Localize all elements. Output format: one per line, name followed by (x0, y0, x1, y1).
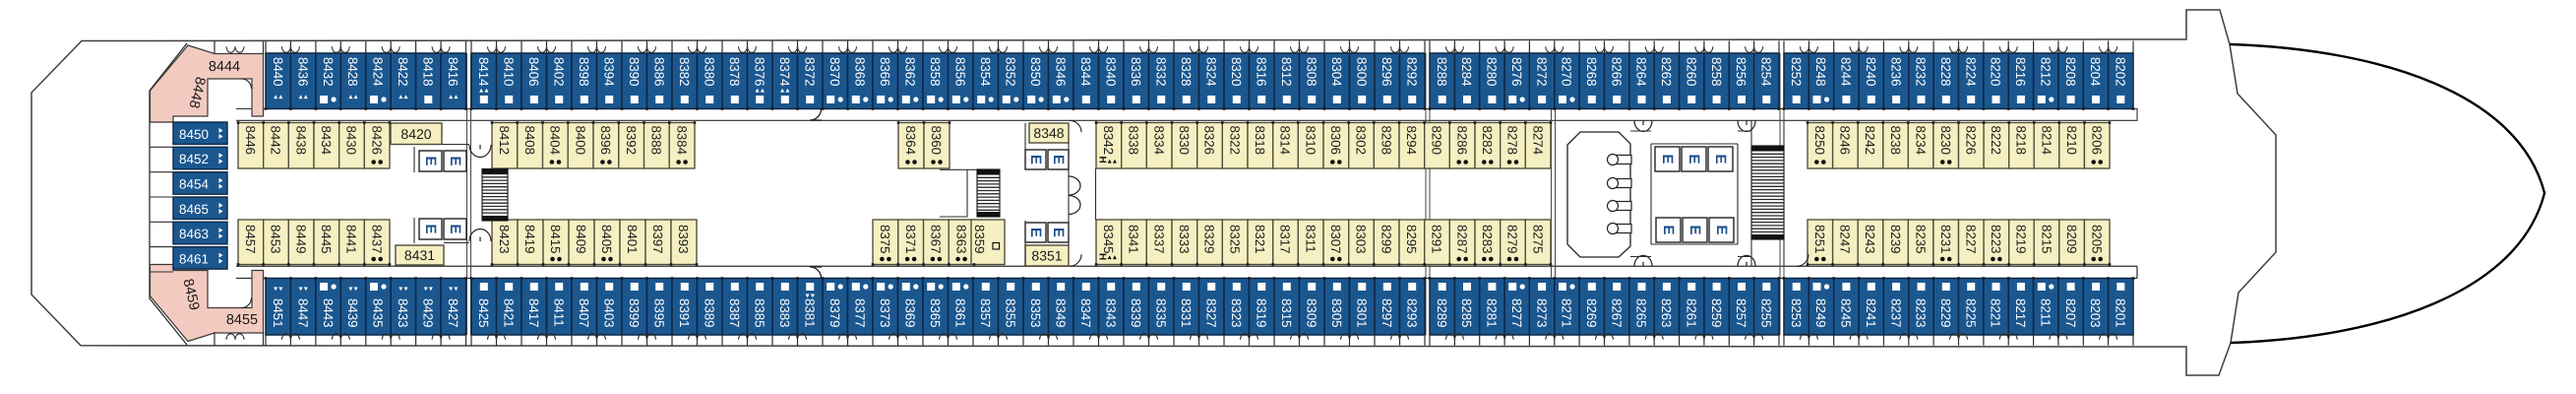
svg-text:8259: 8259 (1709, 298, 1724, 328)
svg-text:8317: 8317 (1278, 225, 1293, 254)
svg-text:8352: 8352 (1004, 57, 1018, 87)
svg-text:8443: 8443 (321, 298, 336, 328)
svg-text:8369: 8369 (903, 298, 918, 328)
svg-text:8430: 8430 (344, 126, 359, 156)
svg-text:8266: 8266 (1609, 57, 1624, 87)
svg-text:8426: 8426 (369, 126, 384, 156)
svg-text:8376: 8376 (753, 57, 767, 87)
svg-text:8360: 8360 (929, 126, 944, 156)
svg-text:8289: 8289 (1435, 298, 1449, 328)
svg-text:8224: 8224 (1963, 57, 1978, 87)
svg-text:8384: 8384 (674, 126, 689, 156)
svg-text:8436: 8436 (295, 57, 310, 87)
svg-text:8298: 8298 (1379, 126, 1393, 156)
svg-text:8345: 8345 (1101, 225, 1116, 254)
svg-text:8373: 8373 (878, 298, 892, 328)
svg-text:8411: 8411 (552, 298, 567, 327)
svg-text:8342: 8342 (1101, 126, 1116, 156)
svg-text:8382: 8382 (677, 57, 692, 87)
svg-text:8365: 8365 (928, 298, 943, 328)
svg-text:8297: 8297 (1380, 298, 1394, 328)
svg-text:8406: 8406 (526, 57, 541, 87)
svg-text:8306: 8306 (1328, 126, 1343, 156)
svg-text:8351: 8351 (1031, 248, 1062, 264)
svg-text:8441: 8441 (344, 225, 359, 254)
svg-text:8338: 8338 (1127, 126, 1141, 156)
svg-text:8428: 8428 (345, 57, 360, 87)
svg-text:8286: 8286 (1454, 126, 1469, 156)
svg-text:E: E (1660, 225, 1677, 234)
svg-text:H: H (1096, 157, 1107, 164)
svg-text:8383: 8383 (777, 298, 792, 328)
svg-text:8421: 8421 (502, 298, 517, 328)
svg-text:8238: 8238 (1888, 126, 1903, 156)
svg-text:8329: 8329 (1202, 225, 1217, 254)
svg-text:8210: 8210 (2064, 126, 2079, 156)
svg-text:8312: 8312 (1279, 57, 1294, 87)
svg-text:8359: 8359 (972, 225, 987, 254)
svg-text:8390: 8390 (627, 57, 642, 87)
svg-text:8377: 8377 (853, 298, 868, 328)
svg-text:8355: 8355 (1004, 298, 1018, 328)
svg-text:8272: 8272 (1534, 57, 1549, 87)
svg-text:8235: 8235 (1913, 225, 1928, 254)
svg-text:8322: 8322 (1227, 126, 1242, 156)
svg-text:8453: 8453 (269, 225, 283, 254)
svg-text:8263: 8263 (1659, 298, 1674, 328)
svg-text:8461: 8461 (179, 251, 209, 266)
svg-text:8437: 8437 (369, 225, 384, 254)
svg-text:8237: 8237 (1888, 298, 1903, 328)
svg-text:8207: 8207 (2063, 298, 2078, 328)
svg-text:8391: 8391 (677, 298, 692, 328)
svg-text:8350: 8350 (1028, 57, 1043, 87)
svg-text:8387: 8387 (727, 298, 742, 328)
svg-text:8429: 8429 (421, 298, 436, 328)
svg-text:8232: 8232 (1914, 57, 1929, 87)
svg-text:8362: 8362 (903, 57, 918, 87)
svg-text:8281: 8281 (1485, 298, 1500, 328)
svg-text:8440: 8440 (271, 57, 285, 87)
svg-text:8366: 8366 (878, 57, 892, 87)
svg-text:8326: 8326 (1202, 126, 1217, 156)
svg-text:8341: 8341 (1127, 225, 1141, 254)
svg-text:8305: 8305 (1329, 298, 1344, 328)
svg-text:8244: 8244 (1839, 57, 1854, 87)
svg-text:8233: 8233 (1914, 298, 1929, 328)
svg-text:8337: 8337 (1151, 225, 1166, 254)
svg-text:8267: 8267 (1609, 298, 1624, 328)
svg-text:8251: 8251 (1812, 225, 1827, 254)
svg-text:8203: 8203 (2088, 298, 2103, 328)
svg-text:8401: 8401 (625, 225, 640, 254)
svg-text:8285: 8285 (1459, 298, 1474, 328)
svg-text:8304: 8304 (1329, 57, 1344, 87)
svg-text:8444: 8444 (209, 59, 240, 75)
svg-text:8397: 8397 (650, 225, 665, 254)
svg-text:8226: 8226 (1964, 126, 1979, 156)
svg-text:8255: 8255 (1759, 298, 1774, 328)
svg-text:8361: 8361 (953, 298, 968, 328)
svg-text:8311: 8311 (1303, 225, 1318, 253)
svg-text:8280: 8280 (1485, 57, 1500, 87)
svg-text:8262: 8262 (1659, 57, 1674, 87)
svg-text:8314: 8314 (1278, 126, 1293, 156)
svg-text:8405: 8405 (599, 225, 614, 254)
svg-text:8427: 8427 (446, 298, 460, 328)
svg-text:8268: 8268 (1584, 57, 1599, 87)
svg-text:8279: 8279 (1505, 225, 1520, 254)
svg-text:8206: 8206 (2089, 126, 2104, 156)
svg-text:8357: 8357 (978, 298, 993, 328)
svg-text:8452: 8452 (179, 152, 209, 166)
svg-text:E: E (422, 156, 439, 165)
svg-text:8449: 8449 (293, 225, 308, 254)
svg-text:8269: 8269 (1584, 298, 1599, 328)
svg-text:8403: 8403 (602, 298, 617, 328)
svg-text:8245: 8245 (1839, 298, 1854, 328)
svg-text:8205: 8205 (2089, 225, 2104, 254)
svg-text:8346: 8346 (1054, 57, 1069, 87)
svg-text:E: E (447, 156, 463, 165)
svg-text:8434: 8434 (319, 126, 334, 156)
svg-text:8273: 8273 (1534, 298, 1549, 328)
svg-text:8438: 8438 (293, 126, 308, 156)
svg-text:8389: 8389 (703, 298, 717, 328)
svg-text:8398: 8398 (577, 57, 591, 87)
svg-text:8310: 8310 (1303, 126, 1318, 156)
svg-text:8370: 8370 (828, 57, 842, 87)
svg-text:8407: 8407 (577, 298, 591, 328)
svg-text:8418: 8418 (421, 57, 436, 87)
svg-text:8422: 8422 (396, 57, 410, 87)
svg-text:8284: 8284 (1459, 57, 1474, 87)
svg-text:8212: 8212 (2039, 57, 2054, 87)
svg-text:8243: 8243 (1863, 225, 1877, 254)
svg-text:8417: 8417 (526, 298, 541, 328)
svg-text:8465: 8465 (179, 202, 209, 217)
svg-text:8215: 8215 (2039, 225, 2054, 254)
svg-text:E: E (1686, 154, 1702, 164)
svg-text:8214: 8214 (2039, 126, 2054, 156)
svg-text:8353: 8353 (1028, 298, 1043, 328)
svg-text:8229: 8229 (1938, 298, 1953, 328)
svg-text:8291: 8291 (1430, 225, 1444, 254)
svg-text:8372: 8372 (803, 57, 818, 87)
svg-text:8277: 8277 (1509, 298, 1524, 328)
svg-text:8368: 8368 (853, 57, 868, 87)
svg-text:8392: 8392 (624, 126, 639, 156)
svg-text:8433: 8433 (396, 298, 410, 328)
svg-text:8333: 8333 (1177, 225, 1192, 254)
svg-text:8404: 8404 (548, 126, 563, 156)
svg-text:8294: 8294 (1404, 126, 1419, 156)
svg-text:8323: 8323 (1229, 298, 1244, 328)
svg-text:8400: 8400 (573, 126, 587, 156)
svg-text:8228: 8228 (1938, 57, 1953, 87)
svg-text:8463: 8463 (179, 227, 209, 241)
svg-text:8225: 8225 (1963, 298, 1978, 328)
svg-text:8222: 8222 (1989, 126, 2003, 156)
svg-text:8264: 8264 (1634, 57, 1649, 87)
svg-text:8276: 8276 (1509, 57, 1524, 87)
svg-text:8204: 8204 (2088, 57, 2103, 87)
svg-text:8216: 8216 (2013, 57, 2028, 87)
svg-text:8288: 8288 (1435, 57, 1449, 87)
svg-text:8339: 8339 (1129, 298, 1143, 328)
svg-text:8445: 8445 (319, 225, 334, 254)
svg-text:8239: 8239 (1888, 225, 1903, 254)
svg-text:8371: 8371 (903, 225, 918, 254)
svg-text:8416: 8416 (446, 57, 460, 87)
svg-text:8230: 8230 (1938, 126, 1953, 156)
svg-text:8242: 8242 (1863, 126, 1877, 156)
svg-text:8349: 8349 (1054, 298, 1069, 328)
svg-text:8316: 8316 (1255, 57, 1269, 87)
svg-text:8379: 8379 (828, 298, 842, 328)
svg-text:8354: 8354 (978, 57, 993, 87)
svg-text:8457: 8457 (243, 225, 258, 254)
svg-text:8420: 8420 (400, 126, 431, 142)
svg-text:8223: 8223 (1989, 225, 2003, 254)
svg-text:8300: 8300 (1355, 57, 1370, 87)
svg-text:8309: 8309 (1305, 298, 1319, 328)
svg-text:8217: 8217 (2013, 298, 2028, 328)
svg-text:8231: 8231 (1938, 225, 1953, 254)
svg-text:8320: 8320 (1229, 57, 1244, 87)
svg-text:8455: 8455 (226, 312, 258, 328)
svg-text:8201: 8201 (2114, 298, 2128, 328)
svg-text:E: E (1713, 225, 1730, 234)
svg-text:8331: 8331 (1179, 298, 1194, 328)
svg-text:8325: 8325 (1227, 225, 1242, 254)
svg-text:8409: 8409 (574, 225, 588, 254)
svg-text:E: E (1687, 225, 1703, 234)
svg-text:8332: 8332 (1154, 57, 1169, 87)
svg-text:8419: 8419 (522, 225, 537, 254)
svg-text:8415: 8415 (548, 225, 563, 254)
svg-text:8221: 8221 (1989, 298, 2003, 328)
svg-text:8386: 8386 (652, 57, 667, 87)
svg-text:E: E (422, 224, 439, 233)
svg-text:8246: 8246 (1838, 126, 1853, 156)
svg-text:8302: 8302 (1354, 126, 1369, 156)
svg-text:E: E (1659, 154, 1676, 164)
svg-text:E: E (1712, 154, 1729, 164)
svg-text:8219: 8219 (2014, 225, 2029, 254)
svg-text:8439: 8439 (345, 298, 360, 328)
svg-text:8202: 8202 (2114, 57, 2128, 87)
svg-text:8260: 8260 (1685, 57, 1699, 87)
svg-text:8301: 8301 (1355, 298, 1370, 328)
svg-text:8435: 8435 (371, 298, 386, 328)
svg-text:8211: 8211 (2039, 298, 2054, 327)
svg-text:8446: 8446 (243, 126, 258, 156)
svg-text:8396: 8396 (598, 126, 613, 156)
svg-text:8358: 8358 (928, 57, 943, 87)
svg-text:8343: 8343 (1104, 298, 1119, 328)
svg-text:8319: 8319 (1255, 298, 1269, 328)
svg-text:8425: 8425 (476, 298, 491, 328)
svg-text:8250: 8250 (1812, 126, 1827, 156)
svg-text:8275: 8275 (1530, 225, 1545, 254)
svg-text:8442: 8442 (269, 126, 283, 156)
svg-text:8447: 8447 (295, 298, 310, 328)
svg-text:8254: 8254 (1759, 57, 1774, 87)
svg-text:8363: 8363 (953, 225, 968, 254)
svg-text:8218: 8218 (2014, 126, 2029, 156)
svg-text:8328: 8328 (1179, 57, 1194, 87)
svg-text:8450: 8450 (179, 127, 209, 142)
svg-text:8241: 8241 (1864, 298, 1878, 328)
svg-text:8278: 8278 (1505, 126, 1520, 156)
svg-text:8303: 8303 (1354, 225, 1369, 254)
svg-text:E: E (1050, 228, 1067, 237)
svg-text:8234: 8234 (1913, 126, 1928, 156)
svg-text:8340: 8340 (1104, 57, 1119, 87)
svg-text:8240: 8240 (1864, 57, 1878, 87)
svg-text:8423: 8423 (497, 225, 512, 254)
svg-text:8248: 8248 (1813, 57, 1828, 87)
svg-text:8299: 8299 (1379, 225, 1393, 254)
svg-text:E: E (1027, 228, 1044, 237)
svg-text:8454: 8454 (179, 177, 210, 192)
svg-text:8334: 8334 (1151, 126, 1166, 156)
svg-text:8295: 8295 (1404, 225, 1419, 254)
svg-text:8356: 8356 (953, 57, 968, 87)
svg-text:8290: 8290 (1430, 126, 1444, 156)
svg-text:8258: 8258 (1709, 57, 1724, 87)
svg-text:8410: 8410 (502, 57, 517, 87)
svg-text:8412: 8412 (497, 126, 512, 156)
svg-text:8330: 8330 (1177, 126, 1192, 156)
svg-text:8385: 8385 (753, 298, 767, 328)
svg-text:8335: 8335 (1154, 298, 1169, 328)
svg-text:8236: 8236 (1888, 57, 1903, 87)
svg-text:8399: 8399 (627, 298, 642, 328)
svg-text:8321: 8321 (1253, 225, 1267, 254)
svg-text:8308: 8308 (1305, 57, 1319, 87)
svg-text:8378: 8378 (727, 57, 742, 87)
svg-text:8227: 8227 (1964, 225, 1979, 254)
svg-text:E: E (1050, 155, 1067, 164)
svg-text:8252: 8252 (1789, 57, 1804, 87)
svg-text:8367: 8367 (929, 225, 944, 254)
svg-text:8287: 8287 (1454, 225, 1469, 254)
svg-text:8424: 8424 (371, 57, 386, 87)
svg-text:8282: 8282 (1480, 126, 1495, 156)
svg-text:8327: 8327 (1204, 298, 1219, 328)
svg-text:8364: 8364 (903, 126, 918, 156)
svg-text:8347: 8347 (1078, 298, 1093, 328)
svg-text:8271: 8271 (1560, 298, 1574, 328)
svg-text:8336: 8336 (1129, 57, 1143, 87)
svg-text:8381: 8381 (803, 298, 818, 328)
svg-text:8208: 8208 (2063, 57, 2078, 87)
svg-text:8414: 8414 (476, 57, 491, 87)
svg-text:8292: 8292 (1405, 57, 1420, 87)
svg-text:8393: 8393 (676, 225, 691, 254)
svg-text:8375: 8375 (878, 225, 892, 254)
svg-text:8220: 8220 (1989, 57, 2003, 87)
svg-text:8296: 8296 (1380, 57, 1394, 87)
svg-text:8256: 8256 (1734, 57, 1748, 87)
svg-text:8265: 8265 (1634, 298, 1649, 328)
svg-text:E: E (1027, 155, 1044, 164)
svg-text:8408: 8408 (522, 126, 537, 156)
svg-text:8431: 8431 (404, 247, 435, 263)
svg-text:8253: 8253 (1789, 298, 1804, 328)
svg-text:8395: 8395 (652, 298, 667, 328)
svg-text:8293: 8293 (1405, 298, 1420, 328)
svg-text:8261: 8261 (1685, 298, 1699, 328)
svg-text:8307: 8307 (1328, 225, 1343, 254)
svg-text:8249: 8249 (1813, 298, 1828, 328)
svg-text:8270: 8270 (1560, 57, 1574, 87)
svg-text:8283: 8283 (1480, 225, 1495, 254)
svg-text:E: E (447, 224, 463, 233)
svg-text:8380: 8380 (703, 57, 717, 87)
svg-text:8451: 8451 (271, 298, 285, 328)
svg-text:8209: 8209 (2064, 225, 2079, 254)
svg-text:8432: 8432 (321, 57, 336, 87)
svg-text:8315: 8315 (1279, 298, 1294, 328)
svg-text:8324: 8324 (1204, 57, 1219, 87)
svg-text:8348: 8348 (1033, 125, 1064, 141)
svg-text:8344: 8344 (1078, 57, 1093, 87)
svg-text:8402: 8402 (552, 57, 567, 87)
svg-text:8394: 8394 (602, 57, 617, 87)
svg-text:8274: 8274 (1530, 126, 1545, 156)
svg-text:8318: 8318 (1253, 126, 1267, 156)
svg-text:8374: 8374 (777, 57, 792, 87)
svg-text:8257: 8257 (1734, 298, 1748, 328)
svg-text:H: H (1096, 253, 1107, 260)
svg-text:8388: 8388 (649, 126, 664, 156)
svg-text:8247: 8247 (1838, 225, 1853, 254)
